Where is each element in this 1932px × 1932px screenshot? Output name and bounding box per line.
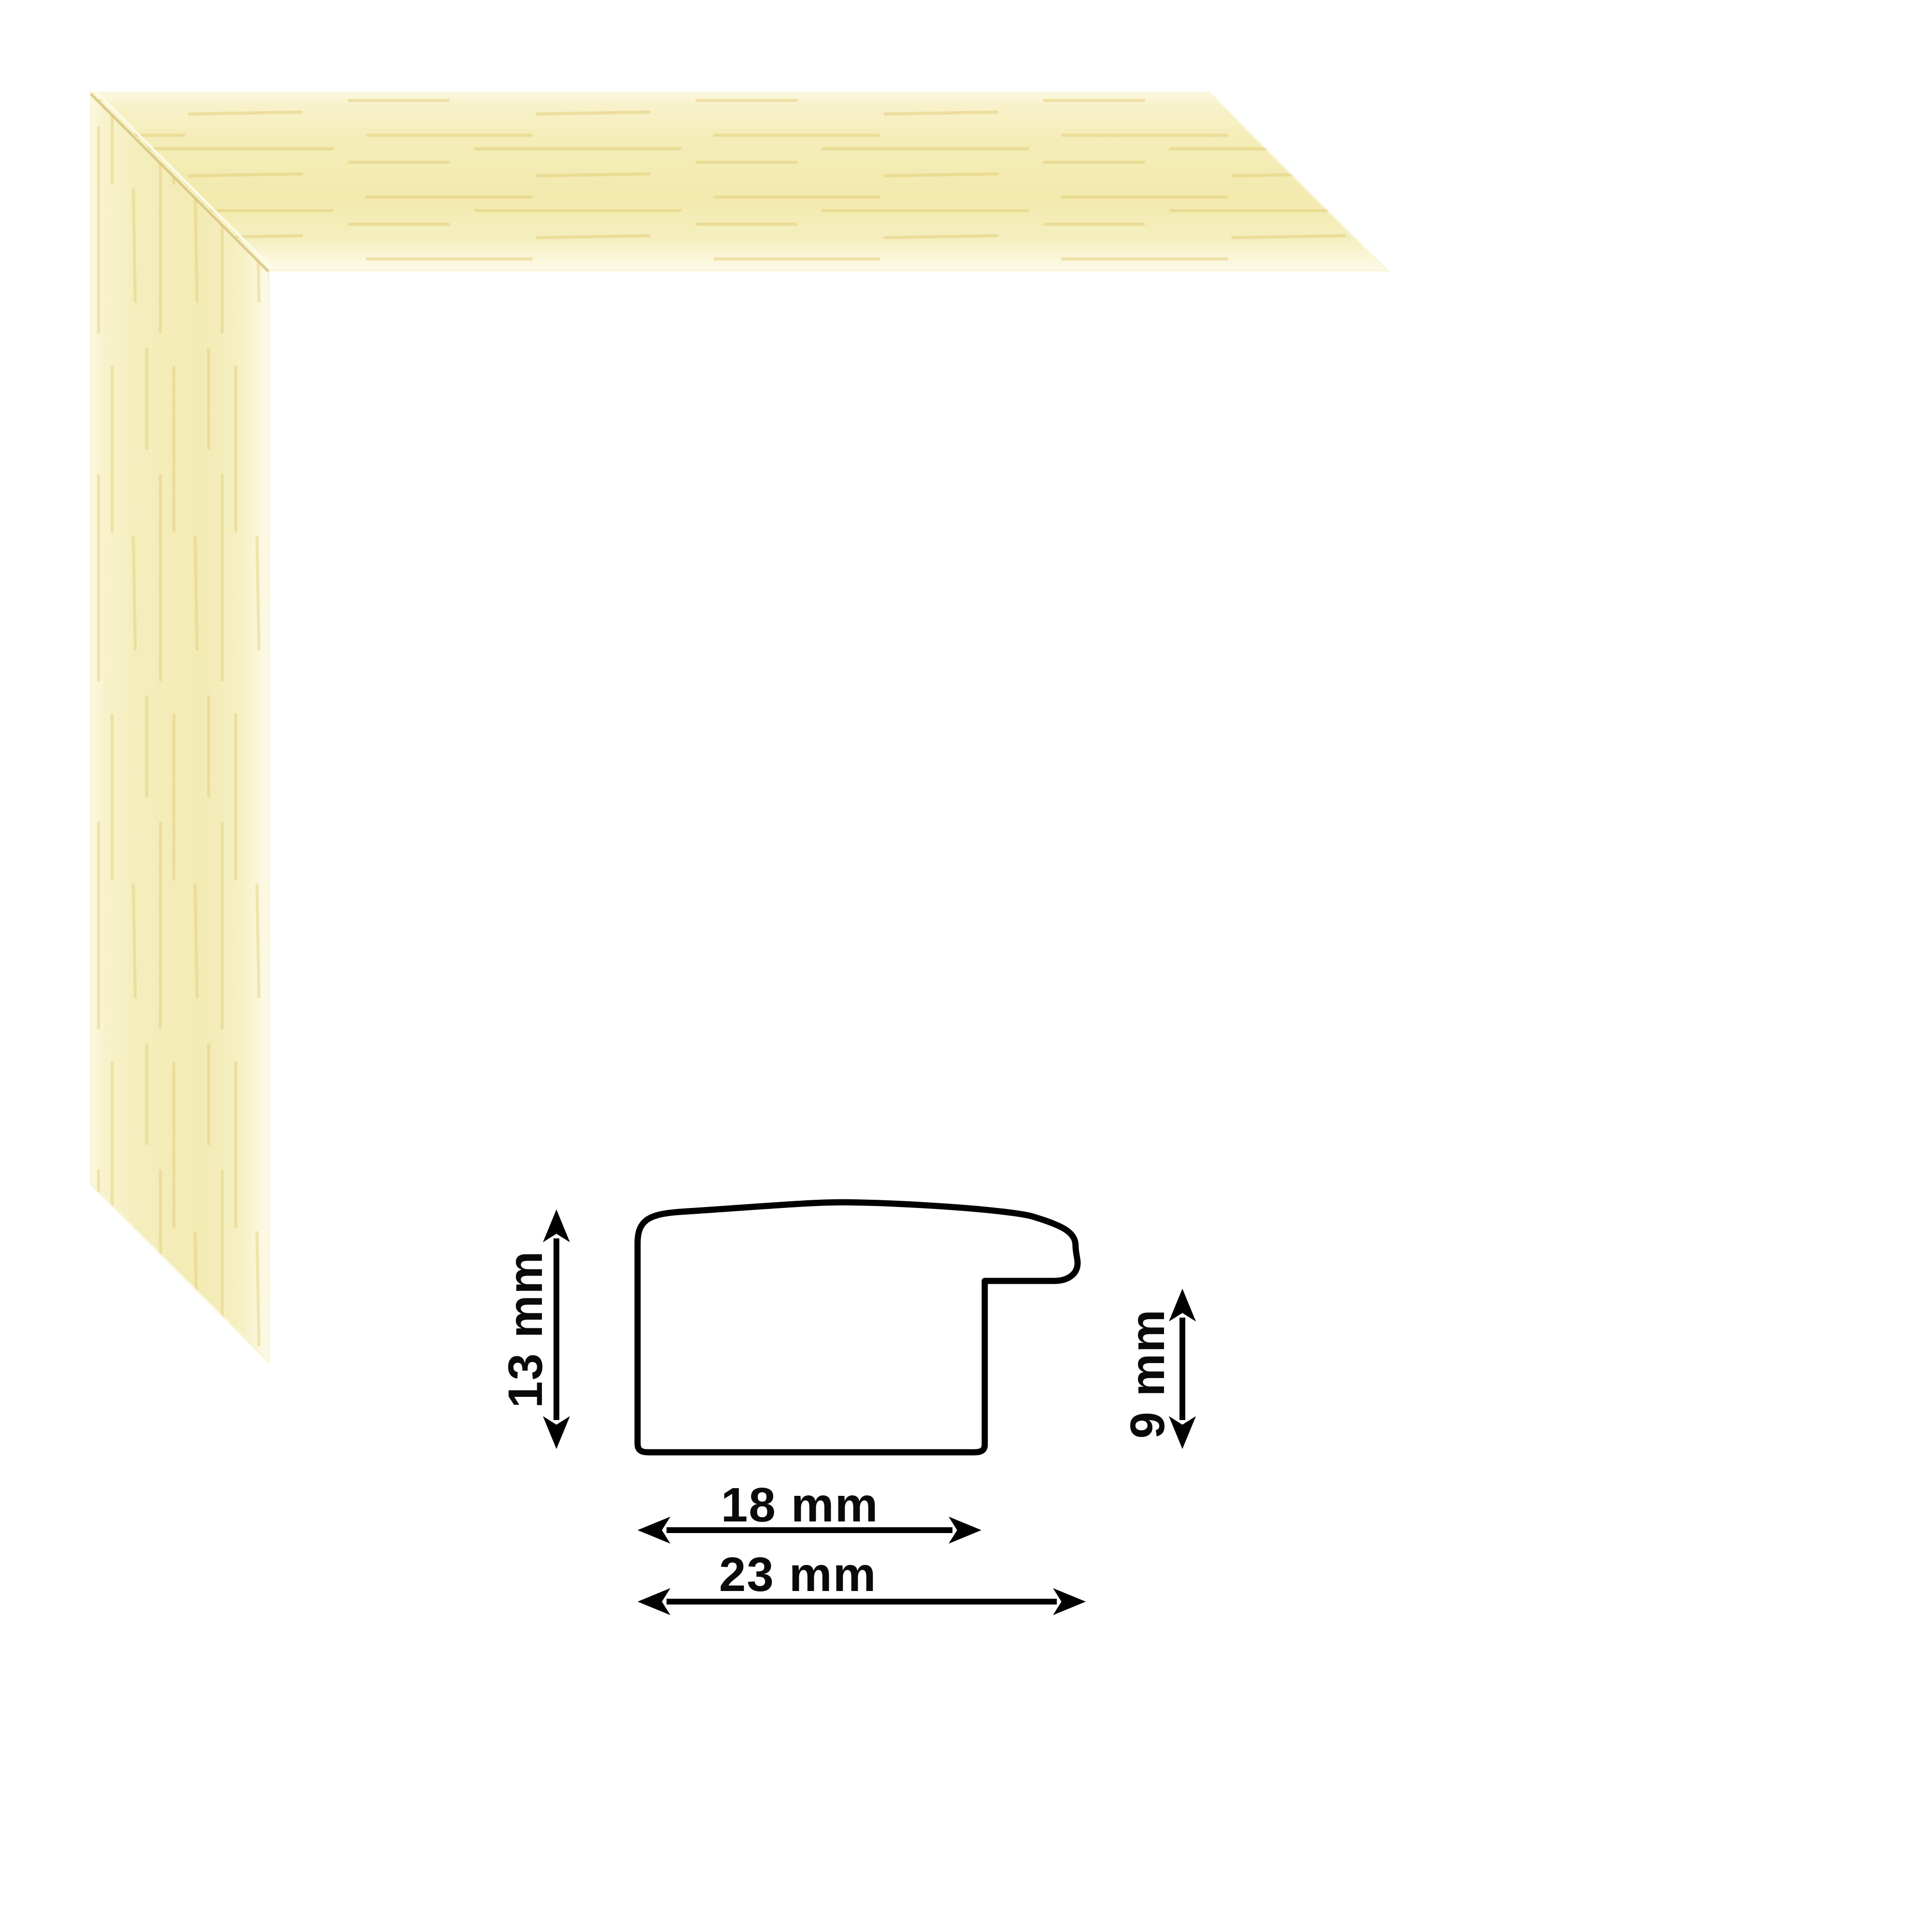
product-image: 13 mm 9 mm 18 mm 23 mm [0,0,1932,1932]
frame-moulding-figure: 13 mm 9 mm 18 mm 23 mm [0,0,1932,1932]
arrowhead-down-icon [543,1416,570,1449]
dim-label-face-width: 18 mm [721,1478,879,1532]
arrowhead-left-icon [638,1588,670,1615]
profile-diagram: 13 mm 9 mm 18 mm 23 mm [498,1202,1196,1615]
dim-total-height: 13 mm [498,1209,570,1449]
dim-label-total-width: 23 mm [719,1548,877,1602]
frame-top-rail-grain [91,93,1387,270]
profile-outline [638,1202,1078,1452]
dim-label-total-height: 13 mm [498,1250,553,1408]
dim-face-width: 18 mm [638,1478,981,1544]
frame-corner-photo [91,90,1387,1362]
arrowhead-right-icon [949,1517,981,1544]
arrowhead-up-icon [543,1209,570,1242]
dim-total-width: 23 mm [638,1548,1086,1615]
frame-left-rail-grain [91,93,269,1362]
arrowhead-right-icon [1053,1588,1086,1615]
arrowhead-left-icon [638,1517,670,1544]
dim-rabbet-height: 9 mm [1121,1289,1196,1449]
dim-label-rabbet-height: 9 mm [1121,1308,1175,1438]
